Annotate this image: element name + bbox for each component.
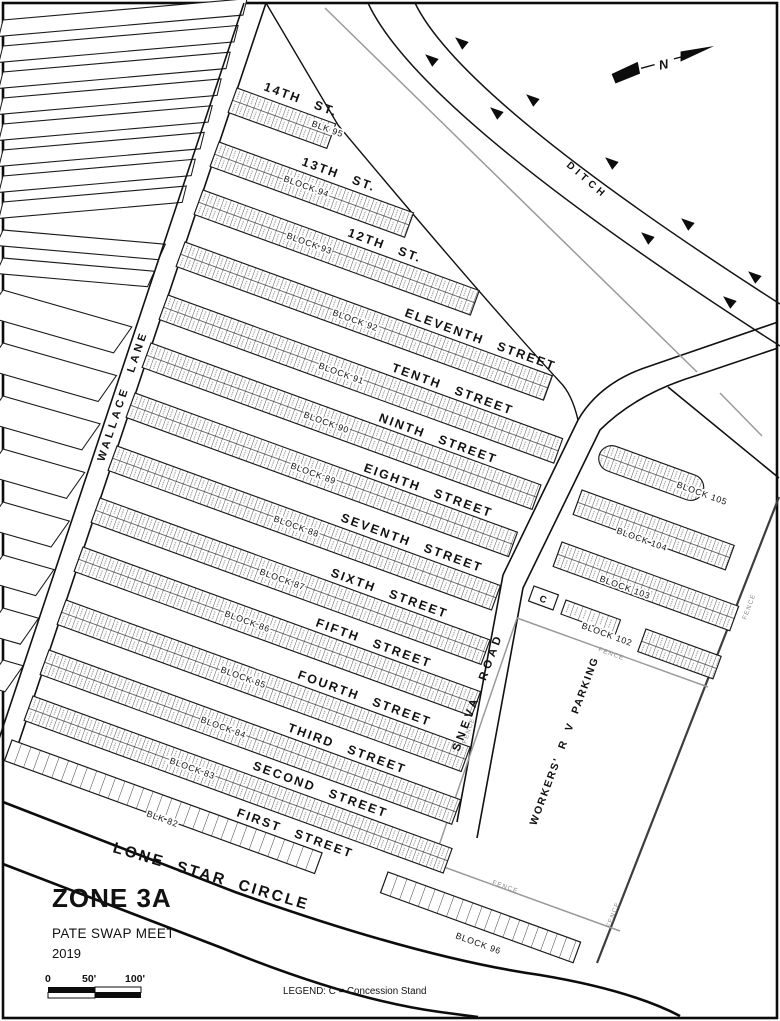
scale-hundred: 100'	[125, 973, 145, 985]
meet-title: PATE SWAP MEET	[52, 926, 175, 941]
scale-fifty: 50'	[82, 973, 96, 985]
legend-label: LEGEND: C = Concession Stand	[283, 986, 427, 997]
zone-map: DITCH WORKERS' R V PARKING FENCE FENCE F…	[0, 0, 780, 1021]
scale-zero: 0	[45, 973, 51, 985]
year-label: 2019	[52, 946, 81, 961]
zone-title: ZONE 3A	[52, 883, 172, 913]
